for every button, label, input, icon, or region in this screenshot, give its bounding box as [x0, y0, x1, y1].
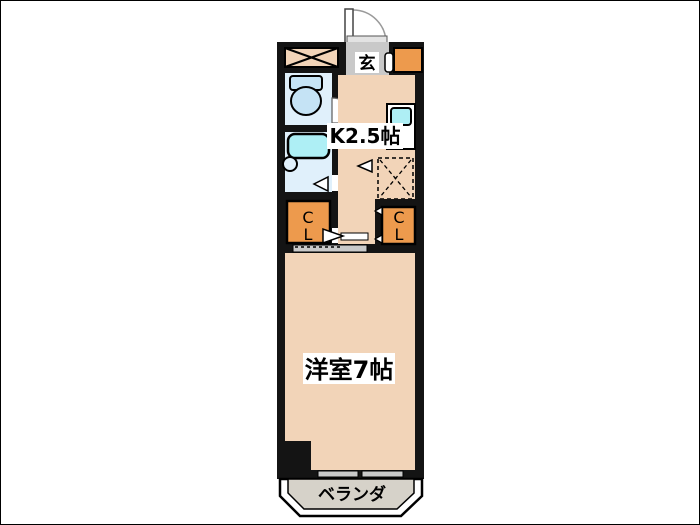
- living-room-label: 洋室7帖: [305, 356, 394, 384]
- window-left: [318, 471, 358, 477]
- kitchen-label: K2.5帖: [330, 124, 401, 148]
- shoe-cabinet-handle: [385, 53, 393, 72]
- entrance-threshold: [347, 36, 387, 43]
- closet-right-label-l: L: [395, 225, 404, 244]
- closet-left-label-l: L: [304, 225, 313, 244]
- toilet-bowl: [291, 87, 321, 115]
- entrance-label: 玄: [359, 53, 376, 74]
- floor-plan-image: 玄 K2.5帖 C L C L: [0, 0, 700, 525]
- corridor-door-leaf: [341, 233, 368, 240]
- washbasin: [283, 157, 297, 171]
- bathroom-door-gap: [332, 175, 338, 191]
- kitchen-sink: [391, 108, 411, 125]
- pillar: [278, 441, 311, 472]
- floor-plan-svg: 玄 K2.5帖 C L C L: [1, 1, 700, 525]
- bathtub: [288, 134, 329, 158]
- sliding-door: [293, 245, 367, 252]
- shoe-cabinet-box: [394, 48, 422, 72]
- balcony-label: ベランダ: [318, 484, 386, 505]
- window-right: [362, 471, 403, 477]
